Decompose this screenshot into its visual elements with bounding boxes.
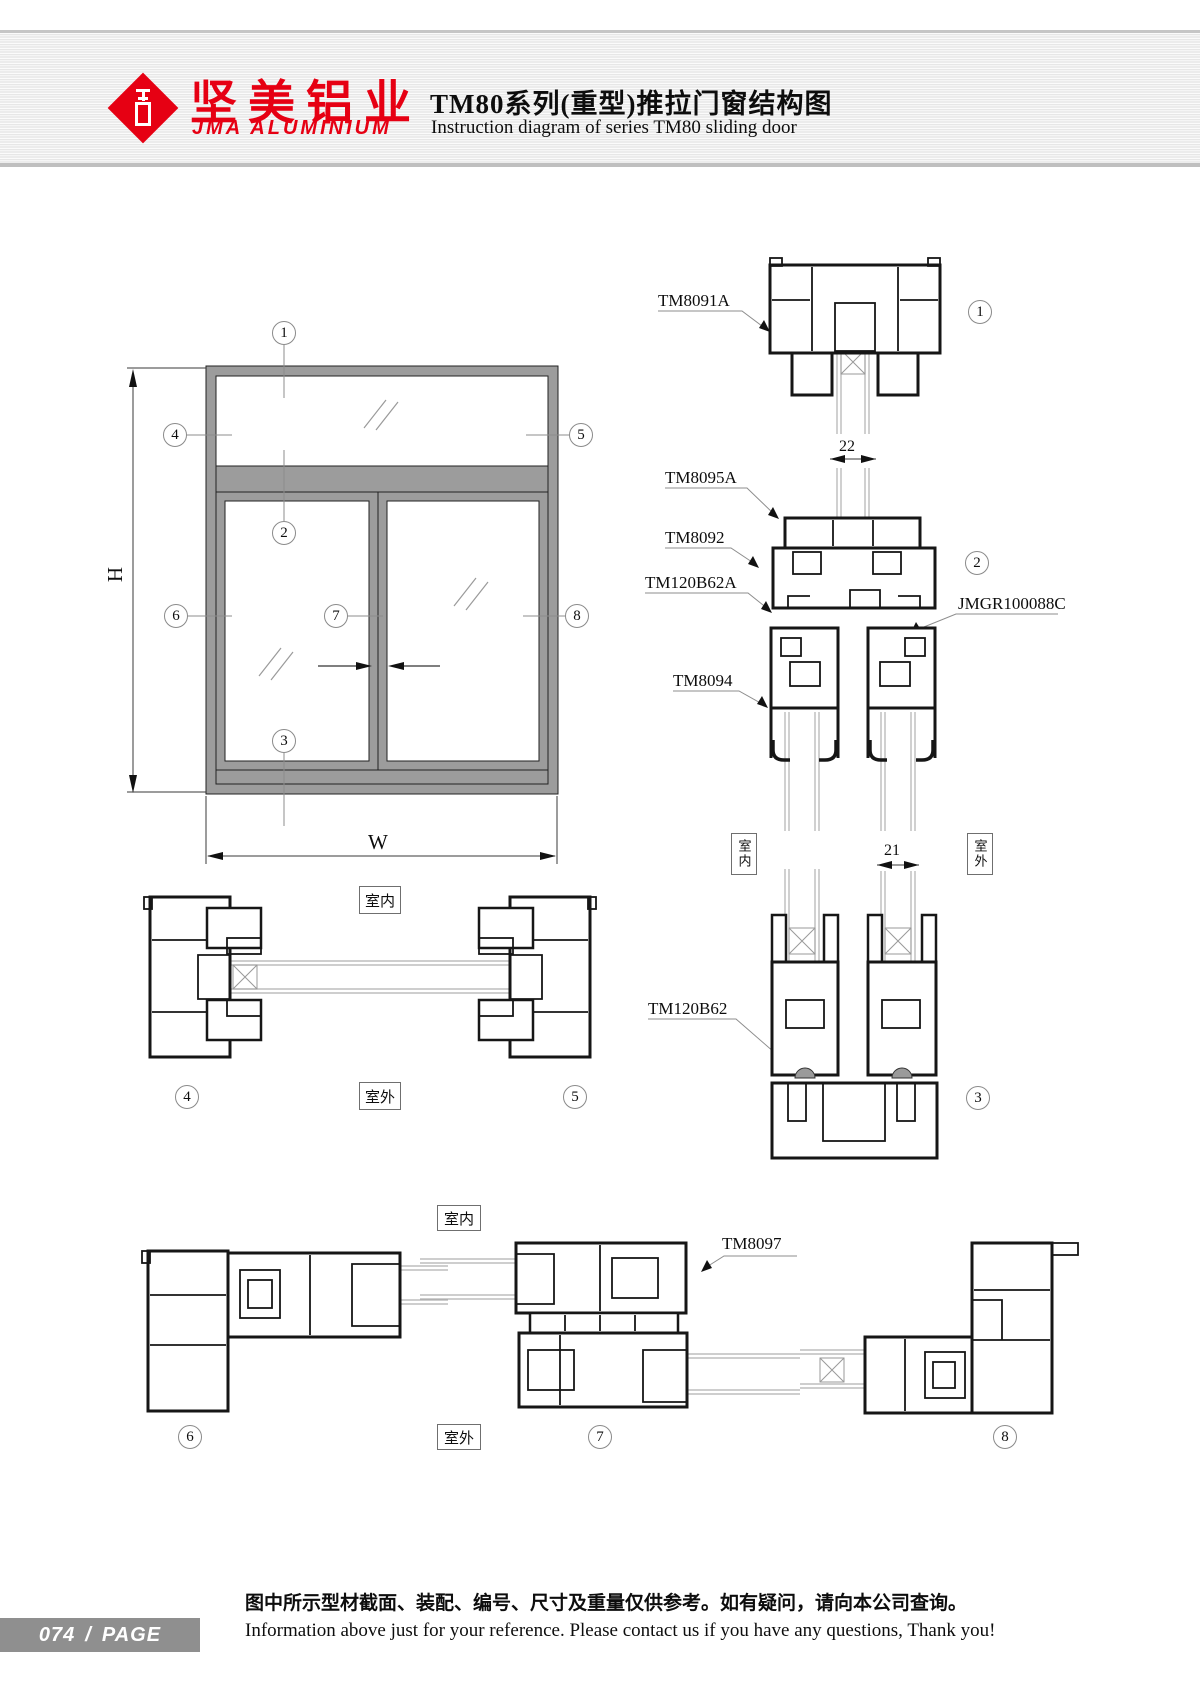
disclaimer-en: Information above just for your referenc… <box>245 1620 995 1642</box>
part-label-tm8092: TM8092 <box>665 528 725 548</box>
page-slash: / <box>85 1624 92 1647</box>
disclaimer-cn: 图中所示型材截面、装配、编号、尺寸及重量仅供参考。如有疑问，请向本公司查询。 <box>245 1588 967 1615</box>
part-label-tm8095a: TM8095A <box>665 468 737 488</box>
section5-profile <box>479 897 596 1057</box>
section-circle-1: 1 <box>968 300 992 324</box>
part-label-jmgr100088c: JMGR100088C <box>958 594 1066 614</box>
callout-circle-2: 2 <box>272 521 296 545</box>
dim-label-w: W <box>368 830 388 855</box>
section-circle-2: 2 <box>965 551 989 575</box>
part-label-tm120b62: TM120B62 <box>648 999 727 1019</box>
section-circle-8: 8 <box>993 1425 1017 1449</box>
part-label-tm8091a: TM8091A <box>658 291 730 311</box>
part-label-tm120b62a: TM120B62A <box>645 573 737 593</box>
section4-profile <box>144 897 261 1057</box>
section8-profile <box>865 1243 1078 1413</box>
section-circle-6: 6 <box>178 1425 202 1449</box>
callout-circle-5: 5 <box>569 423 593 447</box>
page-word: PAGE <box>102 1624 161 1647</box>
outdoor-label-mid: 室外 <box>359 1082 401 1110</box>
catalog-page: 坚美铝业 JMA ALUMINIUM TM80系列(重型)推拉门窗结构图 Ins… <box>0 0 1200 1697</box>
part-label-tm8094: TM8094 <box>673 671 733 691</box>
callout-circle-6: 6 <box>164 604 188 628</box>
indoor-label-section: 室内 <box>731 833 757 875</box>
section-circle-5: 5 <box>563 1085 587 1109</box>
callout-circle-4: 4 <box>163 423 187 447</box>
indoor-label-mid: 室内 <box>359 886 401 914</box>
section6-profile <box>142 1251 400 1411</box>
dim-label-21: 21 <box>884 842 900 860</box>
section-circle-3: 3 <box>966 1086 990 1110</box>
page-number-bar: 074 / PAGE <box>0 1618 200 1652</box>
section-circle-7: 7 <box>588 1425 612 1449</box>
dim-label-22: 22 <box>839 438 855 456</box>
dim-label-h: H <box>103 567 128 582</box>
outdoor-label-bottom: 室外 <box>437 1424 481 1450</box>
callout-circle-1: 1 <box>272 321 296 345</box>
section3-profile <box>772 915 937 1158</box>
section-circle-4: 4 <box>175 1085 199 1109</box>
callout-circle-3: 3 <box>272 729 296 753</box>
page-number: 074 <box>39 1624 75 1647</box>
callout-circle-7: 7 <box>324 604 348 628</box>
elevation-drawing <box>206 366 558 794</box>
indoor-label-bottom: 室内 <box>437 1205 481 1231</box>
section7-profile <box>516 1243 687 1407</box>
outdoor-label-section: 室外 <box>967 833 993 875</box>
callout-circle-8: 8 <box>565 604 589 628</box>
part-label-tm8097: TM8097 <box>722 1234 782 1254</box>
